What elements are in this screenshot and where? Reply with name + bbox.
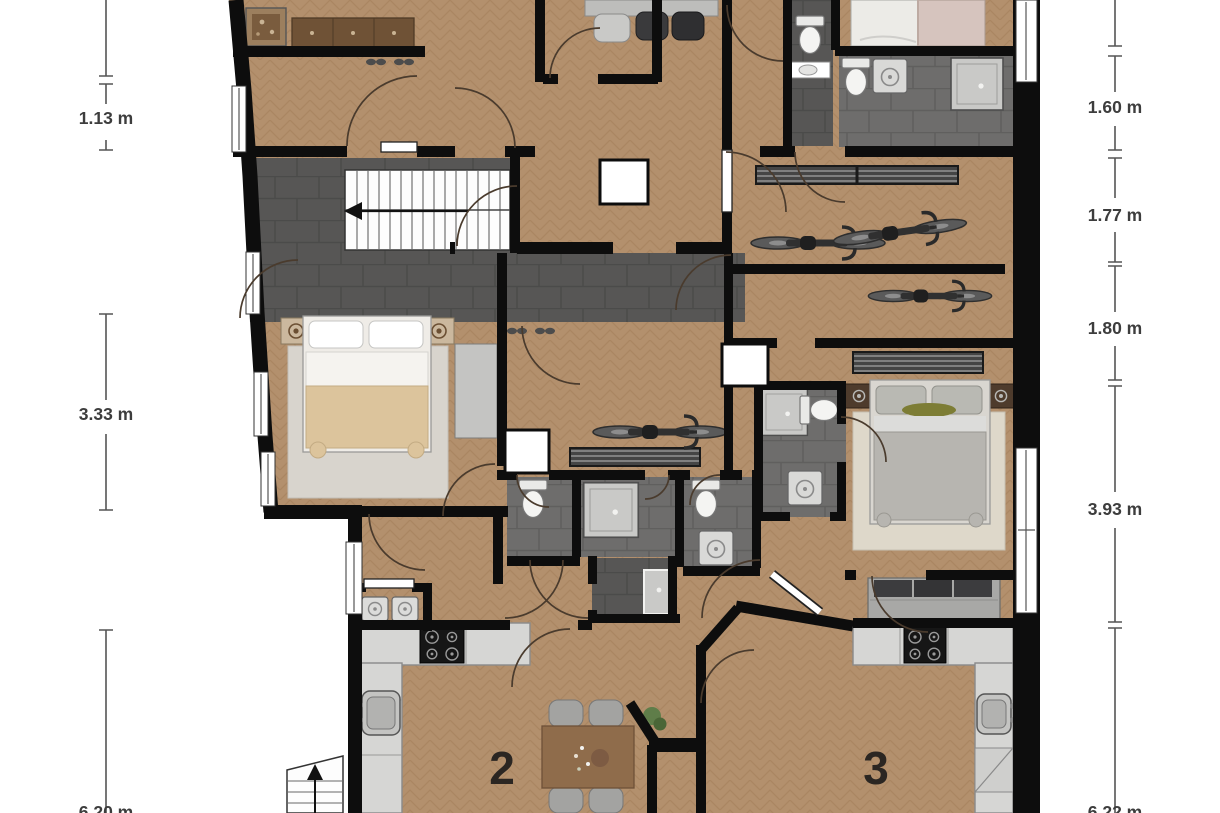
door-leaf — [364, 579, 414, 588]
radiator-icon — [853, 352, 983, 373]
window-icon — [232, 86, 246, 152]
window-icon — [246, 252, 260, 314]
double-bed-icon — [281, 316, 454, 458]
dimension-label: 3.33 m — [79, 404, 133, 424]
wardrobe-icon — [455, 344, 497, 438]
entrance-stairs-icon — [287, 756, 343, 813]
floor-plan-svg: 2 3 1.13 m 3.33 m 6.20 m 1.60 m 1.77 m 1… — [0, 0, 1220, 813]
picture-frame-icon — [246, 8, 286, 46]
shower-icon — [584, 483, 639, 538]
washing-machine-icon — [873, 59, 907, 93]
floor-plan-canvas: 2 3 1.13 m 3.33 m 6.20 m 1.60 m 1.77 m 1… — [0, 0, 1220, 813]
chair-icon — [589, 787, 623, 813]
single-bed-icon — [851, 0, 985, 46]
window-icon — [254, 372, 268, 436]
dining-table-icon — [585, 0, 718, 42]
double-bed-icon — [845, 380, 1015, 527]
dimension-label: 3.93 m — [1088, 499, 1142, 519]
kitchen-sink-icon — [357, 691, 400, 735]
radiator-icon — [570, 448, 700, 466]
stairs-icon — [344, 170, 510, 250]
unit-3-label: 3 — [863, 742, 889, 794]
dimension-label: 6.20 m — [79, 802, 133, 813]
chair-icon — [549, 700, 583, 727]
door-leaf — [722, 150, 732, 212]
dimension-label: 1.13 m — [79, 108, 133, 128]
washing-machine-icon — [699, 531, 733, 565]
stove-icon — [420, 626, 464, 663]
window-icon — [261, 452, 275, 506]
door-leaf — [381, 142, 417, 152]
sofa-icon — [868, 578, 1000, 624]
window-icon — [1016, 448, 1037, 613]
radiator-icon — [756, 166, 958, 184]
dimension-label: 1.80 m — [1088, 318, 1142, 338]
unit-2-label: 2 — [489, 742, 515, 794]
dimension-lines-right — [1108, 0, 1122, 813]
chair-icon — [589, 700, 623, 727]
washing-machine-icon — [788, 471, 822, 505]
window-icon — [1016, 0, 1037, 82]
chair-icon — [672, 12, 704, 40]
shower-icon — [951, 58, 1003, 110]
sideboard-icon — [292, 18, 414, 48]
dimension-label: 6.22 m — [1088, 802, 1142, 813]
chair-icon — [549, 787, 583, 813]
window-icon — [346, 542, 362, 614]
dimension-label: 1.77 m — [1088, 205, 1142, 225]
dimension-label: 1.60 m — [1088, 97, 1142, 117]
bowl-icon — [591, 749, 609, 767]
kitchen-sink-icon — [977, 694, 1016, 734]
